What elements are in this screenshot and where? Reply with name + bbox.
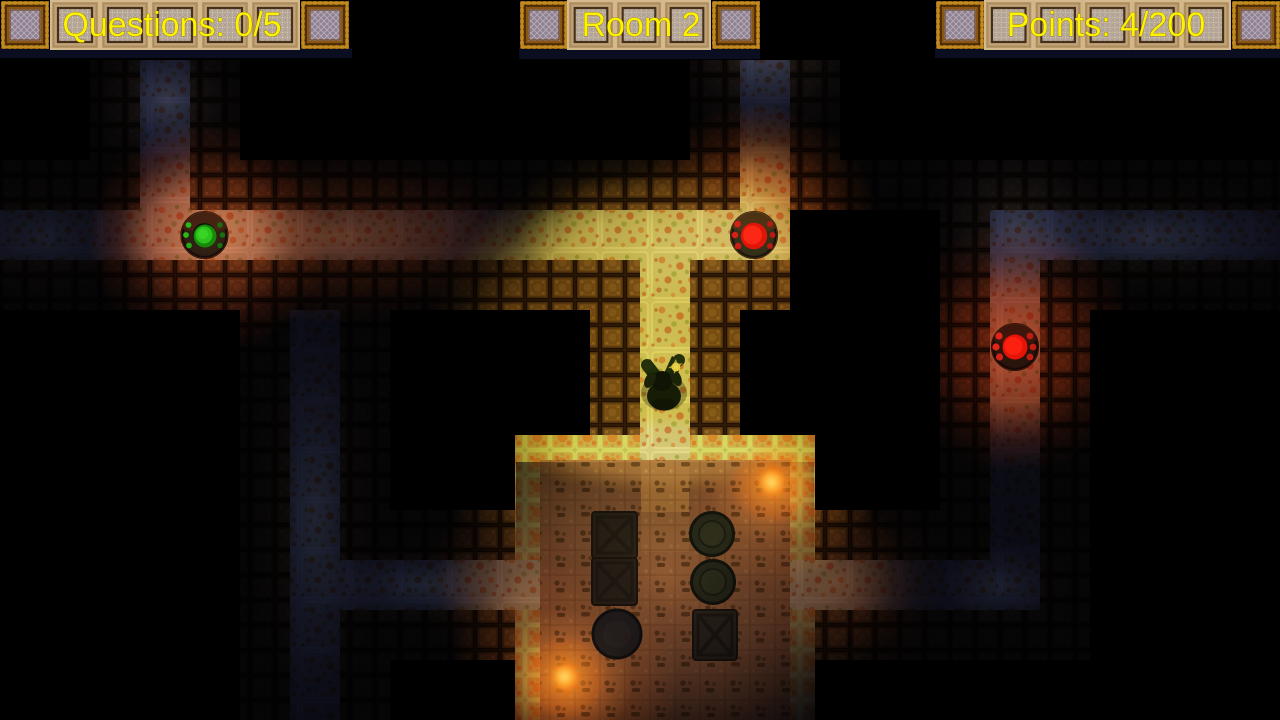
svg-text:Room 2: Room 2 (581, 6, 700, 44)
svg-text:Points: 4/200: Points: 4/200 (1007, 6, 1205, 44)
svg-text:Questions: 0/5: Questions: 0/5 (62, 6, 281, 44)
